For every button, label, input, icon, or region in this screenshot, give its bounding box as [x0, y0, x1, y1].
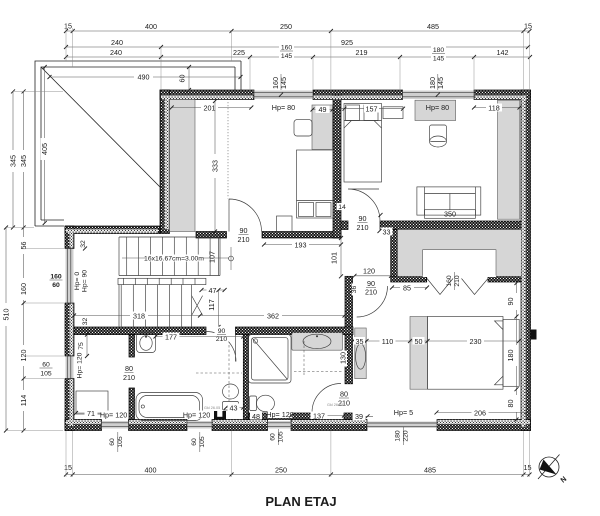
svg-text:145: 145: [281, 53, 293, 60]
svg-text:80: 80: [125, 364, 133, 373]
svg-text:32: 32: [82, 318, 89, 326]
svg-text:32: 32: [80, 240, 87, 248]
svg-text:60: 60: [178, 75, 187, 83]
svg-text:105: 105: [40, 371, 52, 378]
svg-text:219: 219: [356, 48, 368, 57]
svg-text:105: 105: [277, 431, 284, 443]
svg-text:510: 510: [2, 309, 11, 321]
svg-text:142: 142: [497, 48, 509, 57]
svg-text:16x16.67cm=3.00m: 16x16.67cm=3.00m: [144, 256, 204, 263]
svg-text:Hp= 80: Hp= 80: [272, 103, 295, 112]
svg-text:250: 250: [275, 466, 287, 475]
svg-text:Hp= 120: Hp= 120: [77, 352, 84, 378]
svg-text:80: 80: [506, 400, 515, 408]
svg-text:210: 210: [123, 373, 135, 382]
svg-text:105: 105: [117, 436, 124, 448]
svg-text:60: 60: [191, 438, 198, 446]
svg-text:43: 43: [230, 403, 238, 412]
svg-text:49: 49: [319, 105, 327, 114]
svg-text:210: 210: [365, 288, 377, 297]
svg-text:130: 130: [338, 352, 347, 364]
svg-text:145: 145: [433, 56, 445, 63]
svg-text:60: 60: [52, 282, 60, 289]
svg-text:210: 210: [357, 223, 369, 232]
svg-text:Hp= 5: Hp= 5: [394, 408, 413, 417]
svg-text:Hp= 80: Hp= 80: [426, 103, 449, 112]
svg-text:240: 240: [111, 38, 123, 47]
svg-text:400: 400: [145, 466, 157, 475]
svg-text:114: 114: [19, 395, 28, 406]
svg-text:405: 405: [40, 143, 49, 155]
svg-text:210: 210: [216, 336, 228, 343]
svg-text:15: 15: [64, 22, 72, 31]
svg-text:14: 14: [338, 204, 346, 211]
svg-text:48: 48: [252, 412, 260, 421]
svg-text:137: 137: [313, 411, 325, 420]
svg-text:400: 400: [145, 22, 157, 31]
svg-text:240: 240: [110, 48, 122, 57]
svg-text:Hp= 0: Hp= 0: [74, 272, 81, 291]
svg-text:206: 206: [474, 408, 486, 417]
svg-text:220: 220: [402, 430, 409, 442]
svg-text:PLAN ETAJ: PLAN ETAJ: [265, 494, 336, 509]
svg-text:Hp= 120: Hp= 120: [183, 410, 210, 419]
svg-text:33: 33: [383, 228, 391, 237]
svg-text:485: 485: [427, 22, 439, 31]
svg-text:362: 362: [267, 312, 279, 321]
svg-text:318: 318: [133, 312, 145, 321]
svg-text:201: 201: [204, 103, 216, 112]
svg-text:80: 80: [340, 389, 348, 398]
svg-text:105: 105: [199, 436, 206, 448]
svg-text:157: 157: [366, 104, 378, 113]
svg-text:15: 15: [64, 463, 72, 472]
svg-text:345: 345: [19, 155, 28, 167]
svg-text:15: 15: [524, 463, 532, 472]
svg-text:Hp= 120: Hp= 120: [100, 410, 127, 419]
svg-text:35: 35: [356, 337, 364, 346]
svg-text:118: 118: [488, 103, 499, 112]
svg-text:180: 180: [506, 350, 515, 362]
svg-text:85: 85: [403, 283, 411, 292]
svg-text:60: 60: [42, 362, 50, 369]
svg-text:160: 160: [19, 283, 28, 295]
svg-text:350: 350: [444, 210, 456, 219]
svg-text:47: 47: [209, 286, 217, 295]
svg-text:60: 60: [109, 438, 116, 446]
svg-text:345: 345: [9, 155, 18, 167]
svg-text:193: 193: [295, 240, 307, 249]
svg-text:120: 120: [363, 267, 375, 276]
svg-text:230: 230: [470, 337, 482, 346]
svg-text:39: 39: [355, 412, 363, 421]
svg-text:90: 90: [367, 279, 375, 288]
svg-text:36: 36: [351, 286, 358, 294]
svg-text:120: 120: [19, 350, 28, 362]
svg-text:110: 110: [382, 337, 393, 346]
svg-text:250: 250: [280, 22, 292, 31]
svg-text:225: 225: [233, 48, 245, 57]
svg-text:Hp= 90: Hp= 90: [82, 270, 89, 292]
svg-text:160: 160: [50, 274, 62, 281]
svg-text:925: 925: [341, 38, 353, 47]
svg-text:90: 90: [506, 298, 515, 306]
svg-text:90: 90: [240, 226, 248, 235]
svg-text:160: 160: [281, 45, 293, 52]
svg-text:117: 117: [207, 299, 216, 310]
svg-text:210: 210: [238, 235, 250, 244]
svg-text:180: 180: [395, 430, 402, 442]
svg-text:90: 90: [359, 214, 367, 223]
svg-text:60: 60: [270, 433, 277, 441]
svg-text:177: 177: [165, 332, 177, 341]
svg-text:50: 50: [415, 337, 423, 346]
svg-text:Gkl 26.05: Gkl 26.05: [204, 406, 220, 410]
svg-text:210: 210: [454, 275, 461, 287]
svg-text:101: 101: [330, 252, 339, 264]
svg-text:490: 490: [138, 72, 150, 81]
svg-text:145: 145: [436, 77, 445, 89]
svg-text:90: 90: [218, 328, 226, 335]
svg-text:Gkl 26.05: Gkl 26.05: [327, 403, 343, 407]
svg-text:180: 180: [433, 47, 445, 54]
svg-text:75: 75: [78, 342, 85, 350]
svg-text:333: 333: [210, 160, 219, 172]
svg-text:485: 485: [424, 466, 436, 475]
svg-text:107: 107: [208, 251, 217, 263]
svg-text:71: 71: [87, 409, 95, 418]
svg-text:145: 145: [279, 77, 288, 89]
svg-text:15: 15: [524, 22, 532, 31]
svg-text:160: 160: [446, 275, 453, 287]
